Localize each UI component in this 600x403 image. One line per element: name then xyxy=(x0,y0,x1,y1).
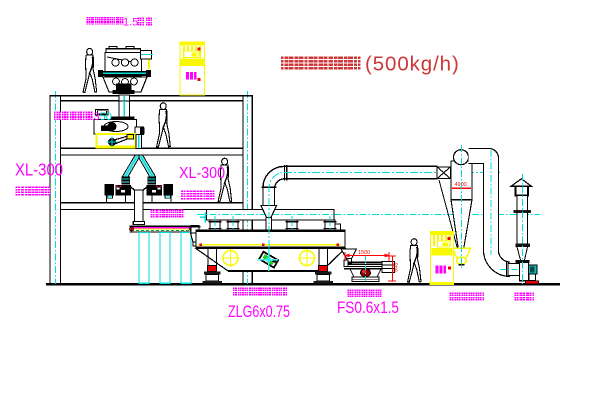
svg-text:(500kg/h): (500kg/h) xyxy=(365,53,460,76)
svg-text:ZLG6x0.75: ZLG6x0.75 xyxy=(228,303,290,321)
svg-text:1500: 1500 xyxy=(358,250,370,256)
svg-text:FS0.6x1.5: FS0.6x1.5 xyxy=(337,299,399,317)
svg-text:350: 350 xyxy=(94,111,112,123)
svg-text:1.5: 1.5 xyxy=(123,17,138,29)
svg-text:545: 545 xyxy=(394,263,400,272)
svg-text:4900: 4900 xyxy=(455,182,467,188)
svg-text:XL-300: XL-300 xyxy=(15,160,63,180)
svg-text:XL-300: XL-300 xyxy=(179,165,225,182)
